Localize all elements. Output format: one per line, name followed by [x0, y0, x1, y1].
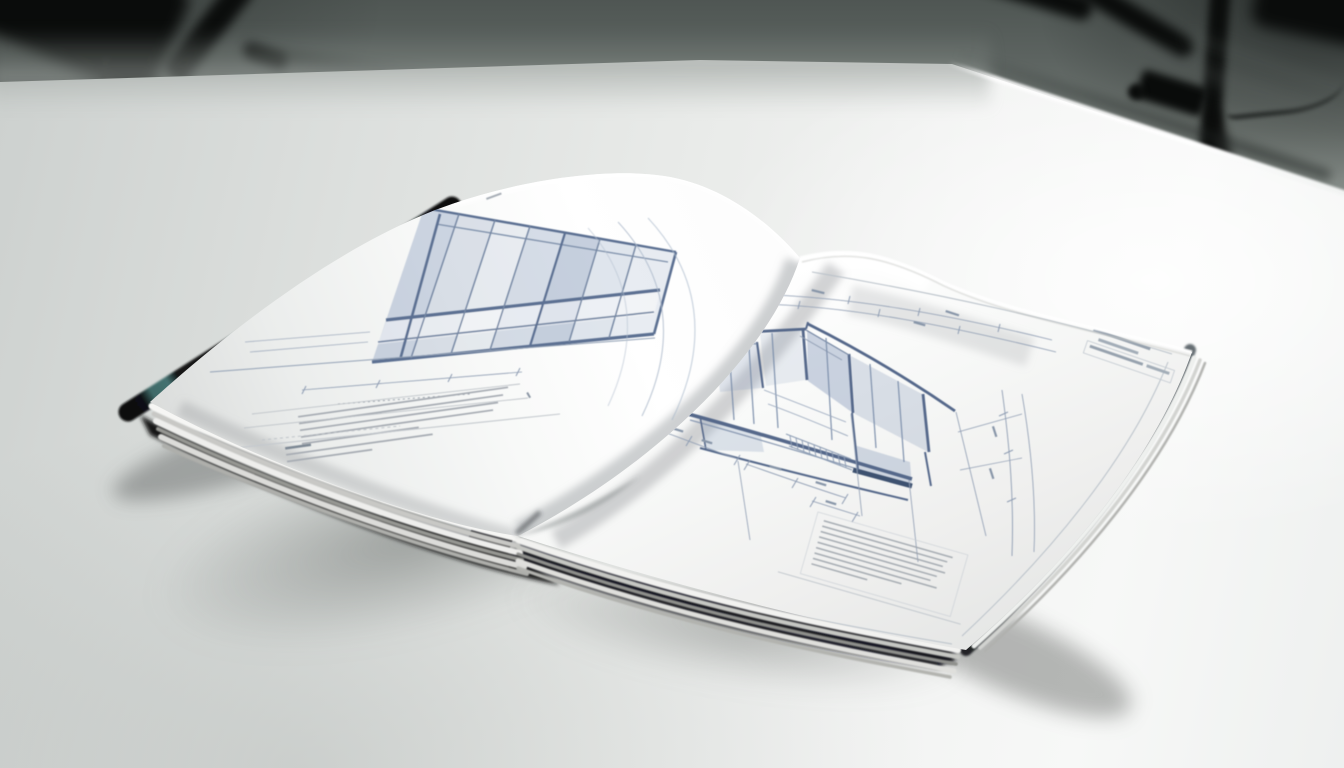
studio-photo-scene — [0, 0, 1344, 768]
open-book — [0, 0, 1344, 768]
